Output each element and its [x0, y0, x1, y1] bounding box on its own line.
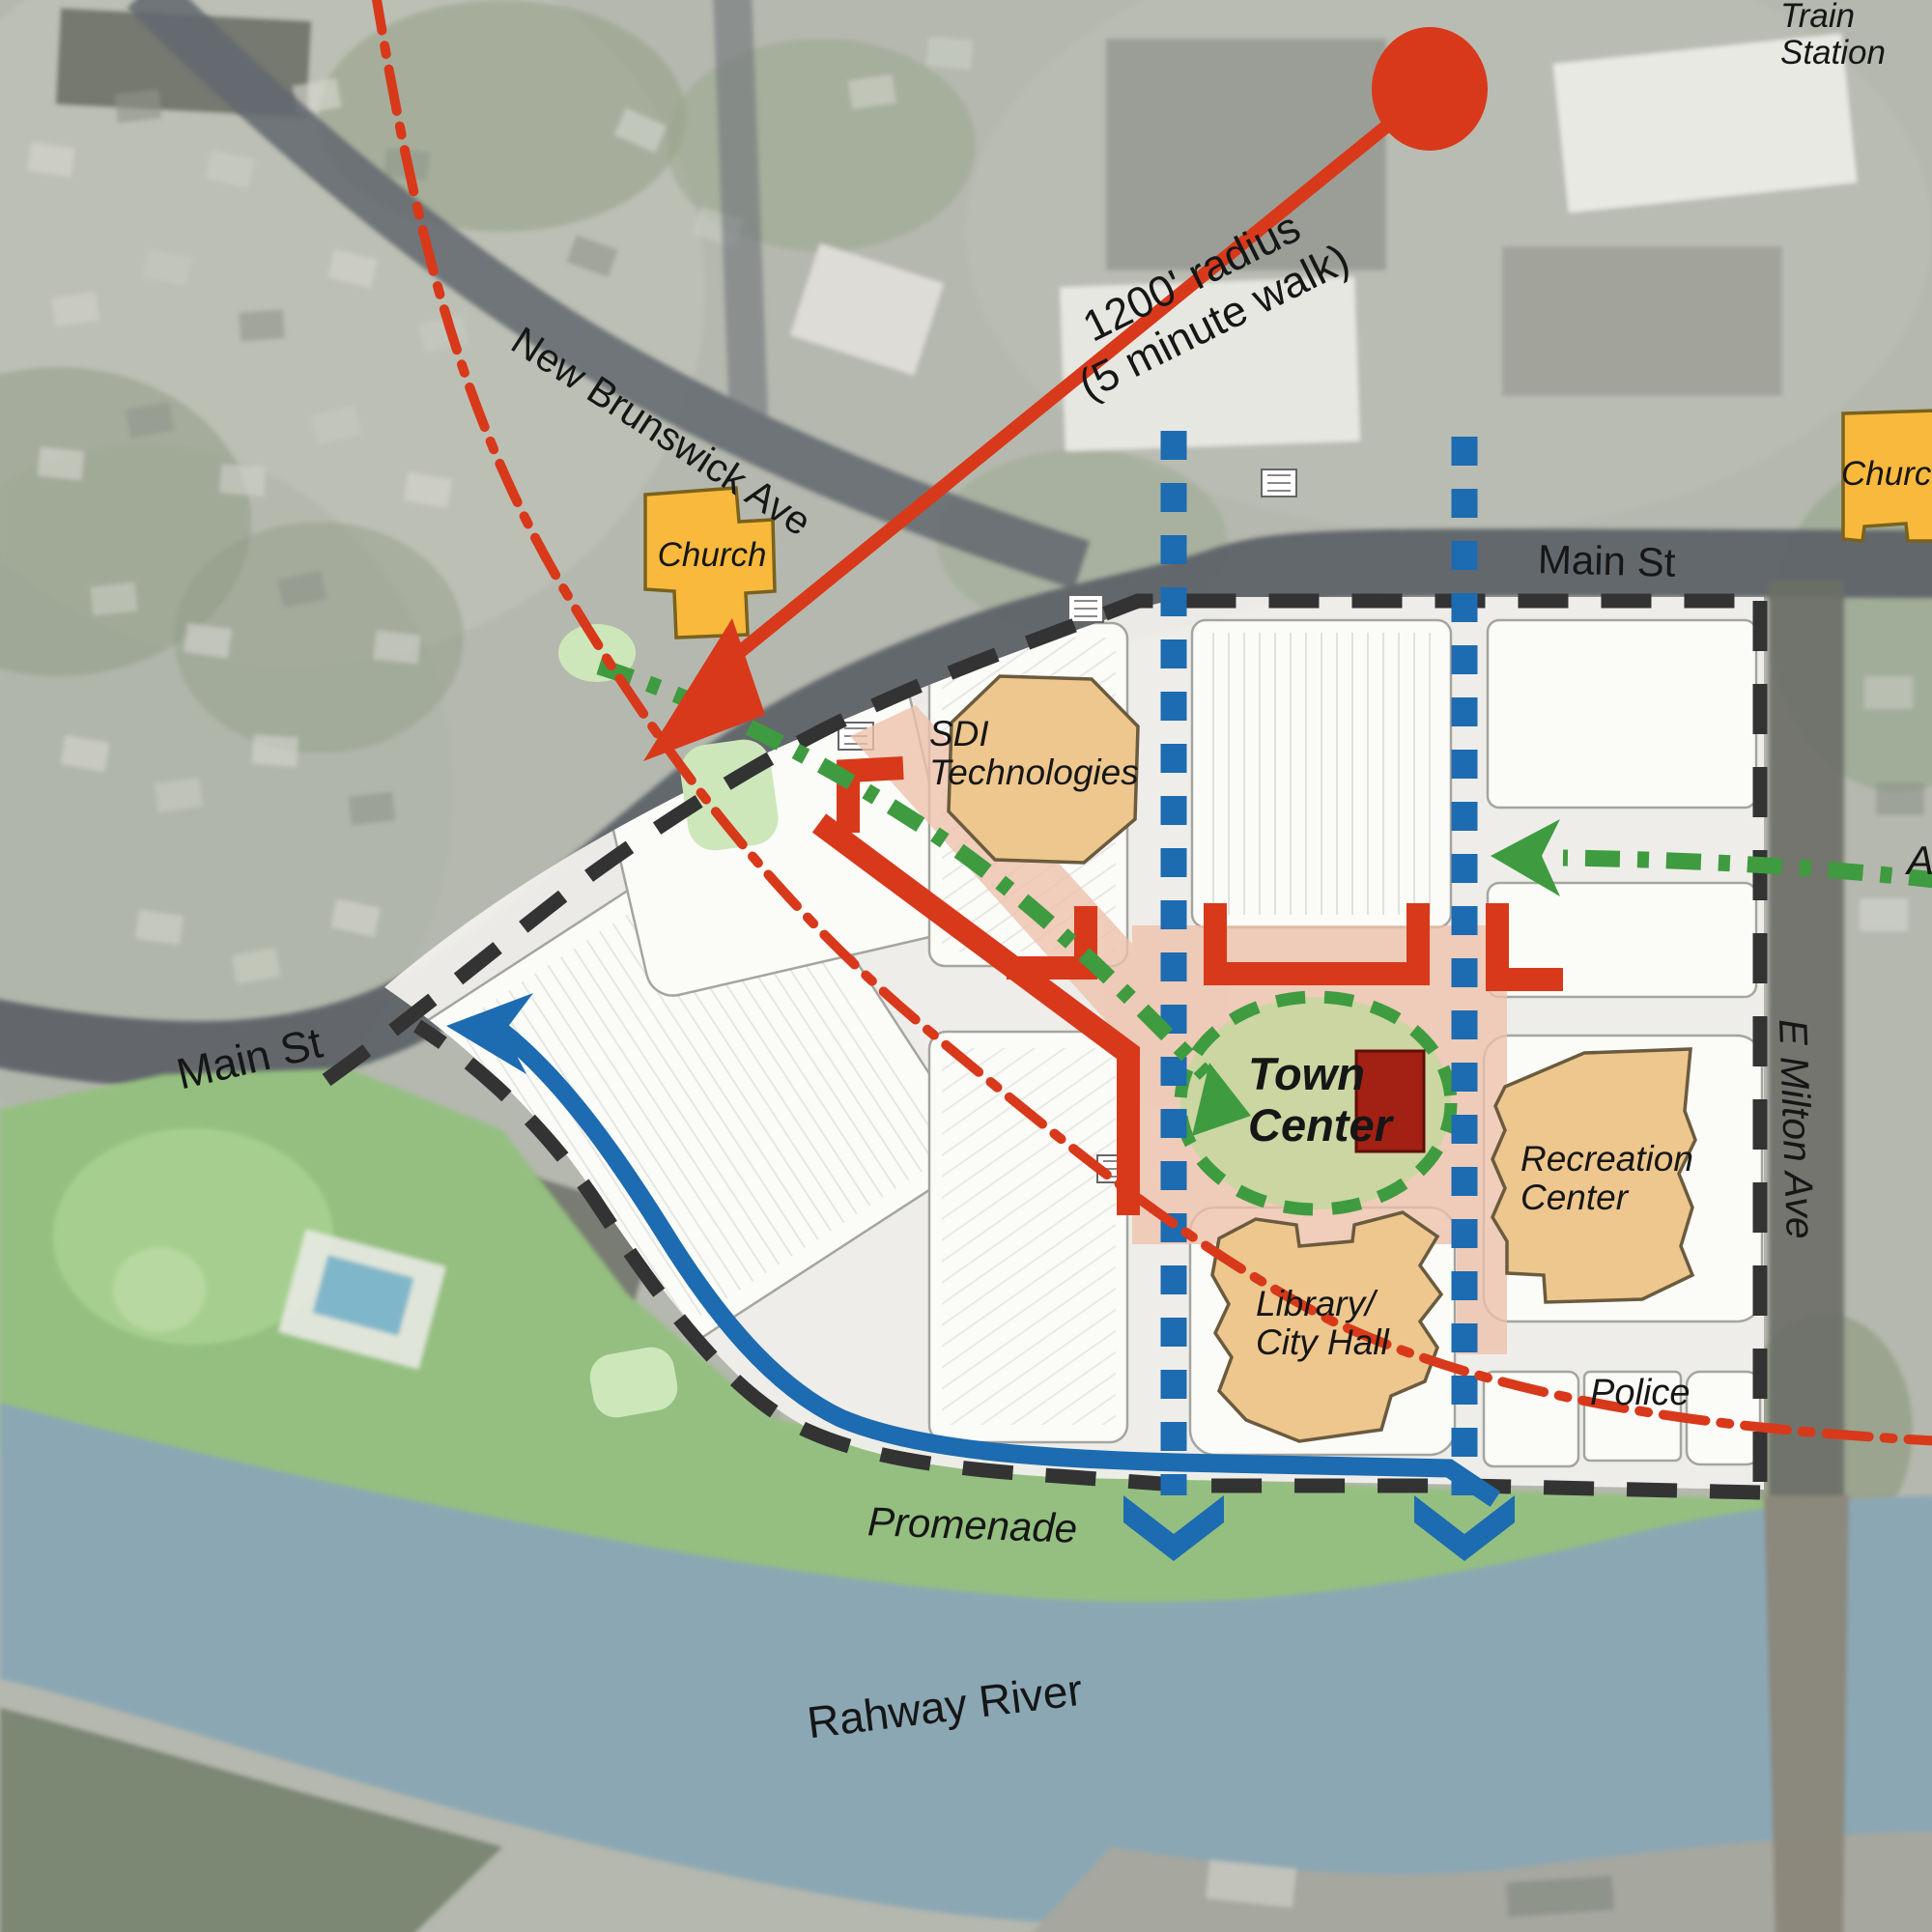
promenade-label: Promenade	[867, 1499, 1078, 1550]
street-partial-right-label: A	[1907, 838, 1932, 882]
train-station-label: Train Station	[1780, 0, 1886, 71]
recreation-center-label: Recreation Center	[1520, 1140, 1693, 1217]
town-center-plan-map: Train Station 1200' radius (5 minute wal…	[0, 0, 1932, 1932]
library-city-hall-label: Library/ City Hall	[1256, 1285, 1389, 1362]
sdi-technologies-label: SDI Technologies	[929, 715, 1139, 792]
town-center-label: Town Center	[1248, 1049, 1392, 1151]
map-graphics	[0, 0, 1932, 1932]
e-milton-ave-label: E Milton Ave	[1772, 1018, 1822, 1239]
church-left-label: Church	[649, 537, 775, 574]
side-street-road	[732, 0, 749, 415]
train-station-marker	[1372, 27, 1488, 151]
main-st-top-label: Main St	[1537, 537, 1676, 584]
police-label: Police	[1590, 1374, 1690, 1413]
church-right-label: Church	[1841, 456, 1932, 493]
bridge	[1764, 1495, 1849, 1932]
